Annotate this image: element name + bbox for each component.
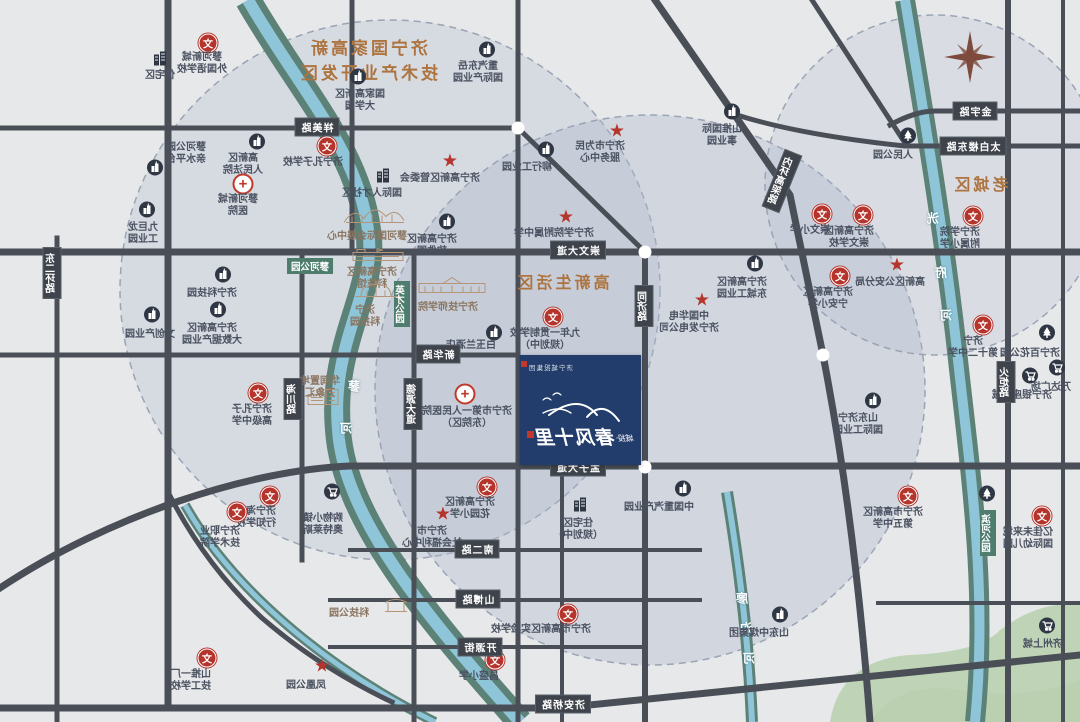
landmark-label: 济宁科技园: [350, 305, 380, 328]
road-label: 祥美路: [295, 118, 340, 137]
info-icon: [479, 41, 496, 58]
info-marker: [144, 306, 161, 328]
landmark-label-line: 高级中学: [232, 416, 272, 428]
landmark-label: 山推一厂技工学校: [171, 669, 211, 692]
zone-title-oldtown: 老城区: [951, 171, 1008, 195]
road-label: 南二路: [455, 540, 500, 559]
zone-title-hightech: 济宁国家高新 技术产业开发区: [298, 34, 438, 84]
landmark-label-line: 蓼河新城: [218, 194, 258, 206]
school-marker: 文: [813, 205, 832, 224]
landmark-label: 购物小镇奥特莱斯: [303, 513, 343, 536]
landmark-label-line: 济宁高新区: [803, 287, 853, 299]
landmark-label-line: 第十二中学: [948, 348, 998, 360]
road-label: 山博路: [456, 590, 501, 609]
landmark-label-line: 住宅区: [145, 70, 175, 82]
landmark-label: 济宁孔子学校: [283, 157, 343, 169]
landmark-label-line: （东院区）: [422, 418, 512, 430]
project-name-seal: [527, 431, 534, 438]
building-marker: [375, 167, 391, 188]
landmark-label-line: 济宁技师学院: [418, 302, 478, 314]
drawing-expo-marker: [342, 201, 406, 232]
landmark-label-line: 外国语学校: [177, 64, 227, 76]
park-marker: [900, 127, 917, 149]
hospital-icon: +: [455, 384, 476, 405]
landmark-label-line: 蓼河新城: [177, 52, 227, 64]
landmark-label-line: 宁安小学: [803, 299, 853, 311]
landmark-label-line: 济宁学院附属中学: [514, 228, 594, 240]
landmark-label-line: 东城工业园: [717, 289, 767, 301]
river-name-char: 河: [940, 307, 952, 324]
landmark-label: 济宁高新区崇文学校: [824, 226, 874, 249]
landmark-label-line: 山东中煤集团: [729, 628, 789, 640]
landmark-label-line: 济宁市第一人民医院: [422, 406, 512, 418]
road-label: 同济路: [635, 285, 654, 327]
landmark-label: 济宁高新区管委会: [400, 173, 480, 185]
star-icon: ★: [609, 123, 625, 139]
landmark-label-line: 事业园: [702, 136, 742, 148]
landmark-label: 柳行工业园: [502, 162, 552, 174]
landmark-label-line: 济宁市高新区: [863, 507, 923, 519]
landmark-label-line: 第五中学: [863, 519, 923, 531]
school-marker: 文: [974, 316, 993, 335]
landmark-label-line: 凤凰公园: [286, 680, 326, 692]
school-marker: 文: [199, 34, 218, 53]
landmark-label: 济宁技师学院: [418, 302, 478, 314]
cart-icon: [324, 483, 341, 500]
school-icon: 文: [544, 308, 563, 327]
landmark-label: 济宁职业技术学院: [200, 526, 240, 549]
school-marker: 文: [964, 207, 983, 226]
landmark-label: 重汽东岳国际产业园: [453, 61, 503, 84]
landmark-label-line: 济宁: [948, 336, 998, 348]
landmark-label: 九年一贯制学校（规划中）: [510, 328, 580, 351]
landmark-label: 华润置地万象汇: [300, 376, 340, 399]
star-marker: ★: [889, 257, 905, 276]
river-name-char: 府: [935, 264, 947, 281]
landmark-label-line: 中国重汽产业园: [624, 502, 694, 514]
school-icon: 文: [899, 487, 918, 506]
drawing-dome-marker: [353, 279, 399, 306]
landmark-label: 蓼河国际会展中心: [327, 231, 407, 243]
building-icon: [152, 50, 168, 66]
landmark-label-line: 济宁孔子: [232, 404, 272, 416]
landmark-label-line: 济宁科技园: [187, 288, 237, 300]
info-marker: [350, 68, 367, 90]
landmark-label-line: 购物小镇: [303, 513, 343, 525]
road-label: 太白楼东路: [940, 137, 1007, 156]
landmark-label: 济宁学院附属小学: [940, 227, 980, 250]
landmark-label-line: 住宅区: [553, 518, 603, 530]
road-label: 火炬路: [997, 361, 1016, 403]
info-icon: [675, 480, 692, 497]
school-icon: 文: [831, 267, 850, 286]
project-marker: 济宁城投集团 城投·春风十里: [520, 355, 641, 465]
school-marker: 文: [854, 206, 873, 225]
landmark-label-line: 济宁职业: [200, 526, 240, 538]
landmark-label: 济宁市高新区第五中学: [863, 507, 923, 530]
landmark-label: 蓼河新城外国语学校: [177, 52, 227, 75]
landmark-label: 中国华电济宁发电公司: [659, 311, 719, 334]
info-marker: [538, 141, 555, 163]
landmark-label-line: 蓼河公园: [166, 142, 206, 154]
landmark-label-line: 软件园: [407, 246, 457, 258]
landmark-label-line: 国家高新区: [335, 89, 385, 101]
landmark-label: 济宁高新区东城工业园: [717, 277, 767, 300]
landmark-label-line: 济宁百花公园: [1000, 348, 1060, 360]
landmark-label-line: 济州上城: [1023, 639, 1063, 651]
landmark-label-line: 国际产业园: [453, 73, 503, 85]
road-label: 德源大道: [404, 378, 423, 430]
info-icon: [865, 392, 882, 409]
zone-title-living: 高新生活区: [514, 269, 609, 293]
info-marker: [439, 213, 456, 235]
landmark-label-line: 济宁高新区管委会: [400, 173, 480, 185]
road-label: 崇文大道: [550, 241, 606, 260]
star-icon: ★: [694, 292, 710, 308]
info-marker: [772, 606, 789, 628]
landmark-label: 济宁市社会福利中心: [402, 526, 462, 549]
landmark-label: 九巨龙工业园: [128, 222, 158, 245]
landmark-label-line: 技工学校: [171, 681, 211, 693]
landmark-label: 万达广场: [1031, 382, 1071, 394]
landmark-label-line: 高新区公安分局: [855, 277, 925, 289]
landmark-label-line: 济宁高新区: [445, 497, 495, 509]
star-icon: ★: [314, 658, 330, 674]
cart-marker: [1049, 359, 1066, 381]
star-icon: ★: [442, 153, 458, 169]
landmark-label: 山东济宁国际工业园: [833, 413, 883, 436]
landmark-label: 济宁高新区软件园: [407, 234, 457, 257]
landmark-label: 凤凰公园: [286, 680, 326, 692]
landmark-label: 济宁市第一人民医院（东院区）: [422, 406, 512, 429]
landmark-label: 昌盛小学: [459, 671, 499, 683]
landmark-label-line: 科技公园: [329, 608, 369, 620]
landmark-label-line: 国际幼儿园: [1003, 539, 1053, 551]
hospital-marker: +: [233, 174, 254, 195]
info-marker: [210, 301, 227, 323]
park-marker: [979, 485, 996, 507]
landmark-label-line: 服务中心: [575, 153, 625, 165]
school-icon: 文: [228, 503, 247, 522]
school-icon: 文: [318, 137, 337, 156]
building-marker: [152, 50, 168, 71]
college-sketch-icon: [417, 276, 487, 296]
road-label: 东二环路: [43, 247, 62, 299]
expo-center-sketch-icon: [342, 201, 406, 227]
landmark-label-line: 济宁高新区: [182, 323, 242, 335]
landmark-label-line: 山东济宁: [833, 413, 883, 425]
dome-building-sketch-icon: [353, 279, 399, 301]
landmark-label-line: 山推一厂: [171, 669, 211, 681]
landmark-label: 济宁高新区大数据产业园: [182, 323, 242, 346]
landmark-label: 蓼河新城医院: [218, 194, 258, 217]
landmark-label-line: 科技园: [350, 317, 380, 329]
park-icon: [1039, 324, 1056, 341]
road-junction-dot: [639, 246, 652, 259]
park-gate-sketch-icon: [383, 597, 409, 615]
landmark-label: 济宁市为民服务中心: [575, 141, 625, 164]
park-label: 蓼河公园: [287, 258, 333, 274]
landmark-label-line: 济宁学院: [940, 227, 980, 239]
landmark-label: 亿佳未来城国际幼儿园: [1003, 527, 1053, 550]
landmark-label-line: 济宁高新区: [717, 277, 767, 289]
landmark-label-line: 文创产业园: [125, 329, 175, 341]
landmark-label: 中国重汽产业园: [624, 502, 694, 514]
school-marker: 文: [544, 308, 563, 327]
landmark-label: 科技公园: [329, 608, 369, 620]
info-icon: [772, 606, 789, 623]
river-name-char: 蓼: [348, 378, 360, 395]
landmark-label: 住宅区（规划中）: [553, 518, 603, 541]
info-icon: [144, 306, 161, 323]
star-marker: ★: [694, 292, 710, 311]
info-marker: [147, 159, 164, 181]
school-icon: 文: [854, 206, 873, 225]
building-icon: [572, 496, 588, 512]
school-marker: 文: [228, 503, 247, 522]
info-icon: [147, 159, 164, 176]
park-marker: [1039, 324, 1056, 346]
school-icon: 文: [559, 605, 578, 624]
landmark-label-line: 高新区: [223, 153, 263, 165]
school-icon: 文: [813, 205, 832, 224]
info-marker: [215, 266, 232, 288]
park-icon: [979, 485, 996, 502]
info-marker: [675, 480, 692, 502]
landmark-label-line: 济宁市为民: [575, 141, 625, 153]
hospital-marker: +: [455, 384, 476, 405]
landmark-label-line: 医院: [218, 206, 258, 218]
landmark-label: 济宁市高新区实验学校: [491, 624, 591, 636]
school-marker: 文: [899, 487, 918, 506]
landmark-label-line: 附属小学: [940, 239, 980, 251]
star-marker: ★: [558, 209, 574, 228]
landmark-label-line: 国际工业园: [833, 425, 883, 437]
star-icon: ★: [889, 257, 905, 273]
landmark-label: 国际人才社区: [342, 188, 402, 200]
school-marker: 文: [478, 478, 497, 497]
landmark-label-line: 万达广场: [1031, 382, 1071, 394]
landmark-label-line: 济宁高新区: [824, 226, 874, 238]
info-icon: [486, 324, 503, 341]
landmark-label: 济宁科技园: [187, 288, 237, 300]
school-icon: 文: [199, 34, 218, 53]
landmark-label-line: 柳行工业园: [502, 162, 552, 174]
drawing-college-marker: [417, 276, 487, 301]
landmark-label: 高新区公安分局: [855, 277, 925, 289]
star-icon: ★: [435, 506, 451, 522]
school-marker: 文: [261, 487, 280, 506]
info-marker: [724, 103, 741, 125]
landmark-label-line: 崇文学校: [824, 238, 874, 250]
cart-marker: [1039, 617, 1056, 639]
landmark-label-line: 花园小学: [445, 509, 495, 521]
landmark-label-line: 中国华电: [659, 311, 719, 323]
landmark-label: 济宁高新区宁安小学: [803, 287, 853, 310]
info-marker: [479, 41, 496, 63]
school-icon: 文: [478, 478, 497, 497]
landmark-label: 住宅区: [145, 70, 175, 82]
landmark-label-line: （规划中）: [553, 530, 603, 542]
landmark-label-line: 国际人才社区: [342, 188, 402, 200]
river-name-char: 河: [340, 420, 352, 437]
hospital-icon: +: [233, 174, 254, 195]
school-marker: 文: [198, 649, 217, 668]
landmark-label: 济宁高新区花园小学: [445, 497, 495, 520]
road-label: 金宇路: [953, 102, 998, 121]
info-marker: [249, 133, 266, 155]
drawing-flat-marker: [351, 247, 405, 268]
info-icon: [215, 266, 232, 283]
project-name: 城投·春风十里: [520, 423, 641, 450]
star-marker: ★: [609, 123, 625, 142]
road-label: 新华路: [416, 345, 461, 364]
info-marker: [747, 255, 764, 277]
landmark-label-line: 山推国际: [702, 124, 742, 136]
landmark-label: 人民公园: [873, 150, 913, 162]
landmark-label-line: 济宁: [350, 305, 380, 317]
school-icon: 文: [964, 207, 983, 226]
cart-marker: [324, 483, 341, 505]
landmark-label-line: 九年一贯制学校: [510, 328, 580, 340]
location-map: 济宁国家高新 技术产业开发区 高新生活区 老城区 济宁城投集团 城投·春风十里 …: [0, 0, 1080, 722]
road-label: 开源街: [458, 638, 503, 657]
landmark-label-line: （规划中）: [510, 340, 580, 352]
park-label: 滨河公园: [980, 510, 996, 556]
river-name-char: 河: [743, 650, 755, 667]
star-marker: ★: [442, 153, 458, 172]
building-marker: [572, 496, 588, 517]
school-icon: 文: [1033, 507, 1052, 526]
landmark-label-line: 济宁高新区: [407, 234, 457, 246]
info-icon: [747, 255, 764, 272]
park-icon: [900, 127, 917, 144]
landmark-label-line: 社会福利中心: [402, 538, 462, 550]
landmark-label: 济宁第十二中学: [948, 336, 998, 359]
landmark-label-line: 人民公园: [873, 150, 913, 162]
landmark-label: 济宁孔子高级中学: [232, 404, 272, 427]
landmark-label: 文创产业园: [125, 329, 175, 341]
landmark-label-line: 工业园: [128, 234, 158, 246]
info-icon: [249, 133, 266, 150]
info-marker: [139, 201, 156, 223]
river-name-char: 廖: [736, 590, 748, 607]
landmark-label: 国家高新区大学园: [335, 89, 385, 112]
school-icon: 文: [249, 384, 268, 403]
landmark-label-line: 华润置地: [300, 376, 340, 388]
landmark-label-line: 大数据产业园: [182, 335, 242, 347]
road-label: 海川路: [284, 378, 303, 420]
info-icon: [350, 68, 367, 85]
school-marker: 文: [249, 384, 268, 403]
building-icon: [375, 167, 391, 183]
road-junction-dot: [512, 122, 525, 135]
landmark-label: 山东中煤集团: [729, 628, 789, 640]
cart-icon: [1039, 617, 1056, 634]
info-marker: [865, 392, 882, 414]
school-marker: 文: [559, 605, 578, 624]
info-icon: [724, 103, 741, 120]
landmark-label: 山推国际事业园: [702, 124, 742, 147]
road-label: 济安桥路: [535, 695, 591, 714]
cart-icon: [1049, 359, 1066, 376]
drawing-gate-marker: [383, 597, 409, 620]
school-icon: 文: [198, 649, 217, 668]
landmark-label: 济州上城: [1023, 639, 1063, 651]
landmark-label-line: 奥特莱斯: [303, 525, 343, 537]
landmark-label-line: 济宁发电公司: [659, 323, 719, 335]
landmark-label: 济宁百花公园: [1000, 348, 1060, 360]
landmark-label-line: 亿佳未来城: [1003, 527, 1053, 539]
science-hall-sketch-icon: [351, 247, 405, 263]
star-marker: ★: [435, 506, 451, 525]
school-marker: 文: [831, 267, 850, 286]
landmark-label-line: 重汽东岳: [453, 61, 503, 73]
star-marker: ★: [314, 658, 330, 677]
landmark-label-line: 亲水平台: [166, 154, 206, 166]
info-icon: [538, 141, 555, 158]
school-icon: 文: [974, 316, 993, 335]
star-icon: ★: [558, 209, 574, 225]
landmark-label-line: 技术学院: [200, 538, 240, 550]
landmark-label-line: 济宁高新区: [347, 267, 397, 279]
landmark-label-line: 大学园: [335, 101, 385, 113]
landmark-label-line: 济宁市高新区实验学校: [491, 624, 591, 636]
school-marker: 文: [1033, 507, 1052, 526]
info-icon: [139, 201, 156, 218]
landmark-label: 蓼河公园亲水平台: [166, 142, 206, 165]
river-name-char: 洸: [927, 210, 939, 227]
landmark-label: 济宁学院附属中学: [514, 228, 594, 240]
landmark-label-line: 九巨龙: [128, 222, 158, 234]
landmark-label-line: 蓼河国际会展中心: [327, 231, 407, 243]
landmark-label-line: 济宁孔子学校: [283, 157, 343, 169]
landmark-label-line: 昌盛小学: [459, 671, 499, 683]
info-icon: [439, 213, 456, 230]
school-marker: 文: [318, 137, 337, 156]
school-icon: 文: [261, 487, 280, 506]
project-corp-seal: [521, 361, 527, 367]
info-icon: [210, 301, 227, 318]
landmark-label-line: 济宁市: [402, 526, 462, 538]
road-junction-dot: [817, 349, 830, 362]
landmark-label-line: 万象汇: [300, 388, 340, 400]
